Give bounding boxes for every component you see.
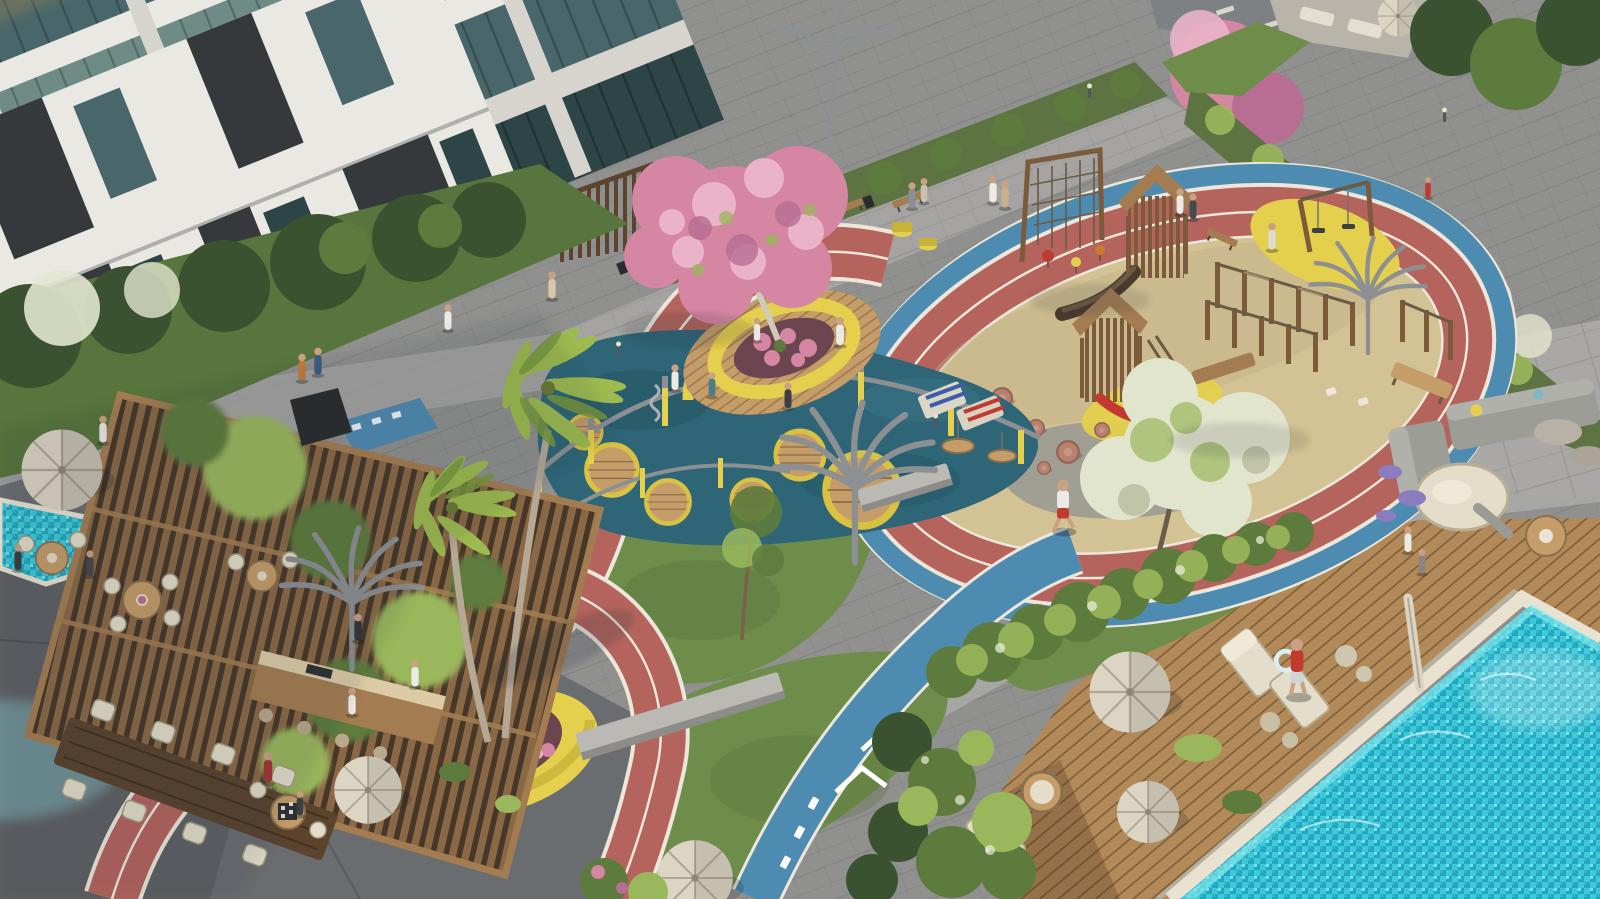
courtyard-render [0, 0, 1600, 899]
egg-chair [1022, 772, 1062, 812]
courtyard-scene [0, 0, 1600, 899]
